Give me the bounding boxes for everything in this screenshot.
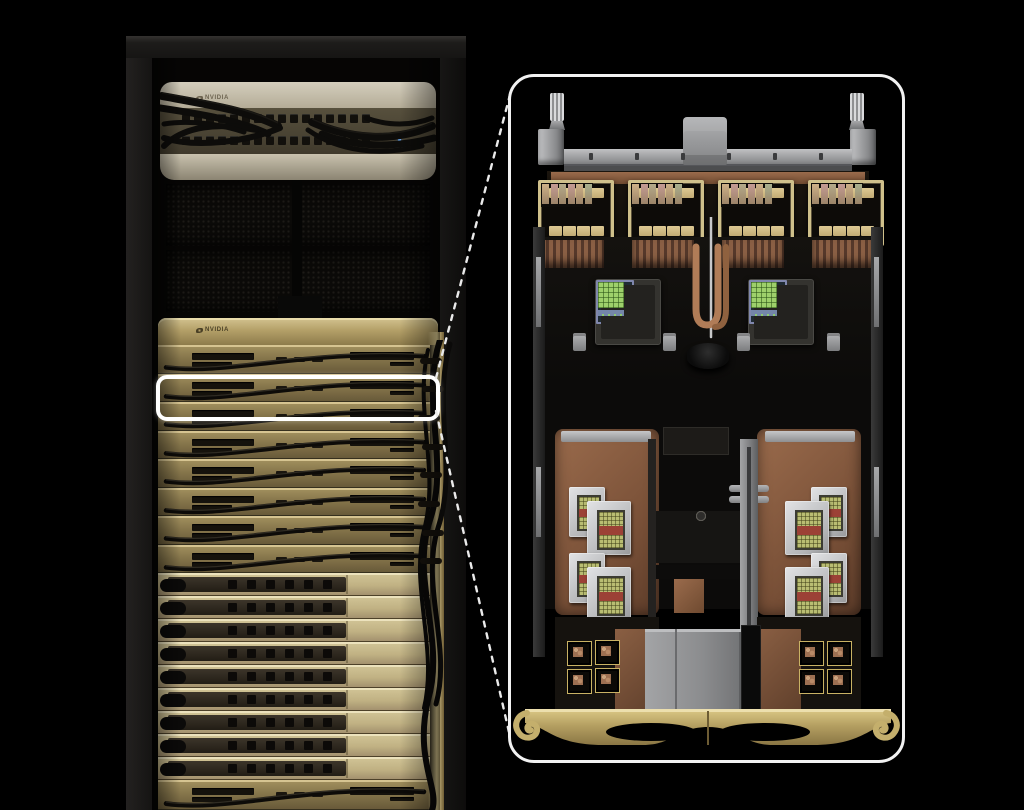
- tray-port: [304, 764, 313, 773]
- tray-seam: [346, 644, 348, 663]
- gpu-io-pad: [591, 226, 604, 236]
- small-chip: [827, 669, 852, 694]
- tray-port: [247, 626, 256, 635]
- nic-die-zone: [797, 578, 821, 592]
- tray-port: [247, 649, 256, 658]
- gpu-die-area: [541, 183, 593, 207]
- tray-port: [285, 649, 294, 658]
- scene: NVIDIA NVIDIA: [0, 0, 1024, 810]
- copper-fin-block: [542, 240, 604, 268]
- gpu-die: [812, 184, 819, 204]
- nic-module: [785, 501, 829, 555]
- gpu-io-pad: [771, 226, 784, 236]
- nic-module: [785, 567, 829, 621]
- tray-port-strip: [168, 738, 346, 753]
- center-latch-block: [683, 117, 727, 165]
- retention-clip: [827, 333, 840, 351]
- tray-port: [266, 603, 275, 612]
- center-rail-dark: [648, 439, 656, 643]
- tray-port: [323, 741, 332, 750]
- tray-port: [266, 695, 275, 704]
- small-chip: [799, 641, 824, 666]
- copper-fin-block: [812, 240, 874, 268]
- tray-port-strip: [168, 669, 346, 684]
- tray-seam: [346, 759, 348, 778]
- tray-port: [304, 672, 313, 681]
- tray-port: [228, 718, 237, 727]
- tray-port: [247, 741, 256, 750]
- handle-cutout: [606, 723, 696, 741]
- gpu-die: [846, 184, 853, 204]
- gpu-die: [559, 184, 566, 204]
- lifting-post-knob: [850, 93, 864, 121]
- tray-side-rail: [533, 227, 545, 657]
- small-chip: [595, 668, 620, 693]
- gpu-die: [838, 184, 845, 204]
- tray-port: [304, 741, 313, 750]
- tray-cable-loop: [160, 717, 186, 730]
- small-chip: [799, 669, 824, 694]
- nic-die-zone: [599, 512, 623, 526]
- center-connector-block: [663, 427, 729, 455]
- nic-die-zone: [599, 601, 623, 614]
- gold-front-bezel: [511, 699, 902, 760]
- cpu-io-strip: [751, 310, 777, 316]
- gpu-die: [568, 184, 575, 204]
- gpu-die: [551, 184, 558, 204]
- gpu-die: [855, 184, 862, 204]
- nic-module: [587, 501, 631, 555]
- tray-port: [304, 580, 313, 589]
- tray-port: [228, 626, 237, 635]
- tray-port: [247, 580, 256, 589]
- clamp-bar: [765, 431, 855, 442]
- crossbar-notch: [773, 153, 777, 160]
- gpu-io-pad: [847, 226, 860, 236]
- gpu-io-pad: [861, 188, 874, 198]
- copper-pad: [674, 579, 704, 613]
- gpu-io-pad: [639, 226, 652, 236]
- small-chip-pad: [573, 675, 583, 685]
- gpu-io-pad: [591, 188, 604, 198]
- small-chip-pad: [805, 647, 815, 657]
- tray-seam: [346, 690, 348, 709]
- tray-cable-loop: [160, 579, 186, 592]
- nic-die-zone: [599, 592, 623, 601]
- tray-port: [228, 764, 237, 773]
- tray-port: [323, 695, 332, 704]
- tray-port: [228, 649, 237, 658]
- tray-port: [285, 741, 294, 750]
- crossbar-notch: [681, 153, 685, 160]
- tray-port: [247, 764, 256, 773]
- small-chip: [567, 669, 592, 694]
- tray-cable-loop: [160, 694, 186, 707]
- tray-seam: [346, 667, 348, 686]
- gpu-die: [739, 184, 746, 204]
- small-chip-pad: [833, 647, 843, 657]
- gpu-io-pad: [833, 226, 846, 236]
- small-chip-pad: [833, 675, 843, 685]
- tray-port: [228, 672, 237, 681]
- tray-port: [304, 626, 313, 635]
- tray-cable-loop: [160, 671, 186, 684]
- small-chip-pad: [573, 647, 583, 657]
- rack-top-cap: [126, 36, 466, 58]
- tray-port: [228, 580, 237, 589]
- gpu-die-area: [811, 183, 863, 207]
- gpu-die: [731, 184, 738, 204]
- tray-port: [323, 764, 332, 773]
- tray-port: [304, 695, 313, 704]
- tray-port-strip: [168, 646, 346, 661]
- small-chip: [595, 640, 620, 665]
- nic-die-zone: [599, 578, 623, 592]
- gpu-die: [658, 184, 665, 204]
- gpu-die: [821, 184, 828, 204]
- handle-cutout: [720, 723, 810, 741]
- tray-port: [323, 626, 332, 635]
- tray-port: [285, 718, 294, 727]
- small-chip: [827, 641, 852, 666]
- tray-port: [266, 580, 275, 589]
- tray-port-strip: [168, 692, 346, 707]
- nvidia-logo-bezel: NVIDIA: [196, 327, 229, 333]
- gpu-die: [748, 184, 755, 204]
- cpu-die-grid: [598, 282, 624, 308]
- tray-port: [228, 603, 237, 612]
- nic-chip: [795, 576, 823, 616]
- tray-port: [323, 672, 332, 681]
- tray-seam: [346, 713, 348, 732]
- tray-port-strip: [168, 623, 346, 638]
- tray-port: [266, 718, 275, 727]
- gpu-io-pad: [681, 188, 694, 198]
- tray-port: [285, 672, 294, 681]
- tray-port: [266, 626, 275, 635]
- tray-port: [228, 741, 237, 750]
- tray-seam: [346, 575, 348, 594]
- nic-chip: [795, 510, 823, 550]
- gpu-die: [675, 184, 682, 204]
- gpu-die: [722, 184, 729, 204]
- tray-port: [304, 603, 313, 612]
- cpu-module: [748, 279, 814, 345]
- gpu-io-pad: [563, 226, 576, 236]
- nic-die-zone: [797, 535, 821, 548]
- center-rail: [740, 439, 758, 643]
- power-bar: [653, 565, 749, 579]
- tray-highlight-box: [156, 375, 440, 421]
- gpu-io-pad: [757, 226, 770, 236]
- cpu-die-grid: [751, 282, 777, 308]
- nic-chip: [597, 510, 625, 550]
- gpu-die: [756, 184, 763, 204]
- center-drum: [687, 343, 729, 369]
- gpu-die-area: [631, 183, 683, 207]
- tray-port: [285, 764, 294, 773]
- clamp-bar: [561, 431, 651, 442]
- nic-die-zone: [599, 526, 623, 535]
- crossbar-notch: [589, 153, 593, 160]
- gpu-io-pad: [819, 226, 832, 236]
- tray-port: [247, 603, 256, 612]
- gpu-die-area: [721, 183, 773, 207]
- rack-left-post: [126, 58, 152, 810]
- gpu-io-pad: [549, 226, 562, 236]
- tray-port: [323, 649, 332, 658]
- tray-port: [266, 672, 275, 681]
- tray-seam: [346, 736, 348, 755]
- small-chip: [567, 641, 592, 666]
- switch-cable-bundles: [160, 80, 436, 180]
- tray-port: [247, 718, 256, 727]
- gpu-io-pad: [653, 226, 666, 236]
- nic-die-zone: [797, 512, 821, 526]
- crossbar-notch: [819, 153, 823, 160]
- tray-seam: [346, 598, 348, 617]
- gpu-die: [641, 184, 648, 204]
- tray-port: [304, 649, 313, 658]
- crossbar-notch: [727, 153, 731, 160]
- tray-port: [323, 718, 332, 727]
- gpu-io-pad: [577, 226, 590, 236]
- gpu-die: [666, 184, 673, 204]
- compute-tray-detail: [511, 77, 902, 760]
- capacitor-bank: [653, 511, 749, 563]
- tray-port: [304, 718, 313, 727]
- small-chip-pad: [805, 675, 815, 685]
- tray-port: [247, 672, 256, 681]
- nic-die-zone: [797, 592, 821, 601]
- nic-die-zone: [797, 526, 821, 535]
- crossbar-notch: [635, 153, 639, 160]
- tray-cable-loop: [160, 763, 186, 776]
- nic-die-zone: [797, 601, 821, 614]
- lifting-post-knob: [550, 93, 564, 121]
- lifting-post-base: [850, 129, 876, 165]
- tray-port: [285, 626, 294, 635]
- tray-port-strip: [168, 577, 346, 592]
- gpu-die: [542, 184, 549, 204]
- tray-port: [266, 764, 275, 773]
- tray-port: [266, 649, 275, 658]
- tray-port-strip: [168, 715, 346, 730]
- capacitor: [696, 511, 706, 521]
- tray-cable-loop: [160, 625, 186, 638]
- lifting-post-base: [538, 129, 564, 165]
- tray-port-strip: [168, 600, 346, 615]
- retention-clip: [573, 333, 586, 351]
- inset-panel: [508, 74, 905, 763]
- tray-port: [285, 580, 294, 589]
- gpu-die: [649, 184, 656, 204]
- tray-port: [266, 741, 275, 750]
- tray-port: [323, 603, 332, 612]
- nvidia-eye-icon: [196, 328, 203, 333]
- tray-side-rail: [871, 227, 883, 657]
- cpu-module: [595, 279, 661, 345]
- nic-die-zone: [599, 535, 623, 548]
- nic-module: [587, 567, 631, 621]
- tray-port-strip: [168, 761, 346, 776]
- gpu-die: [576, 184, 583, 204]
- gpu-die: [632, 184, 639, 204]
- tray-port: [228, 695, 237, 704]
- nic-chip: [597, 576, 625, 616]
- small-chip-pad: [601, 674, 611, 684]
- gpu-die: [829, 184, 836, 204]
- gpu-io-pad: [771, 188, 784, 198]
- tray-port: [323, 580, 332, 589]
- tray-seam: [346, 621, 348, 640]
- gpu-die: [765, 184, 772, 204]
- cpu-io-strip: [598, 310, 624, 316]
- tray-port: [285, 695, 294, 704]
- tray-port: [247, 695, 256, 704]
- tray-cable-loop: [160, 602, 186, 615]
- tray-cable-loop: [160, 648, 186, 661]
- tray-cable-loop: [160, 740, 186, 753]
- tray-port: [285, 603, 294, 612]
- gpu-die: [585, 184, 592, 204]
- small-chip-pad: [601, 646, 611, 656]
